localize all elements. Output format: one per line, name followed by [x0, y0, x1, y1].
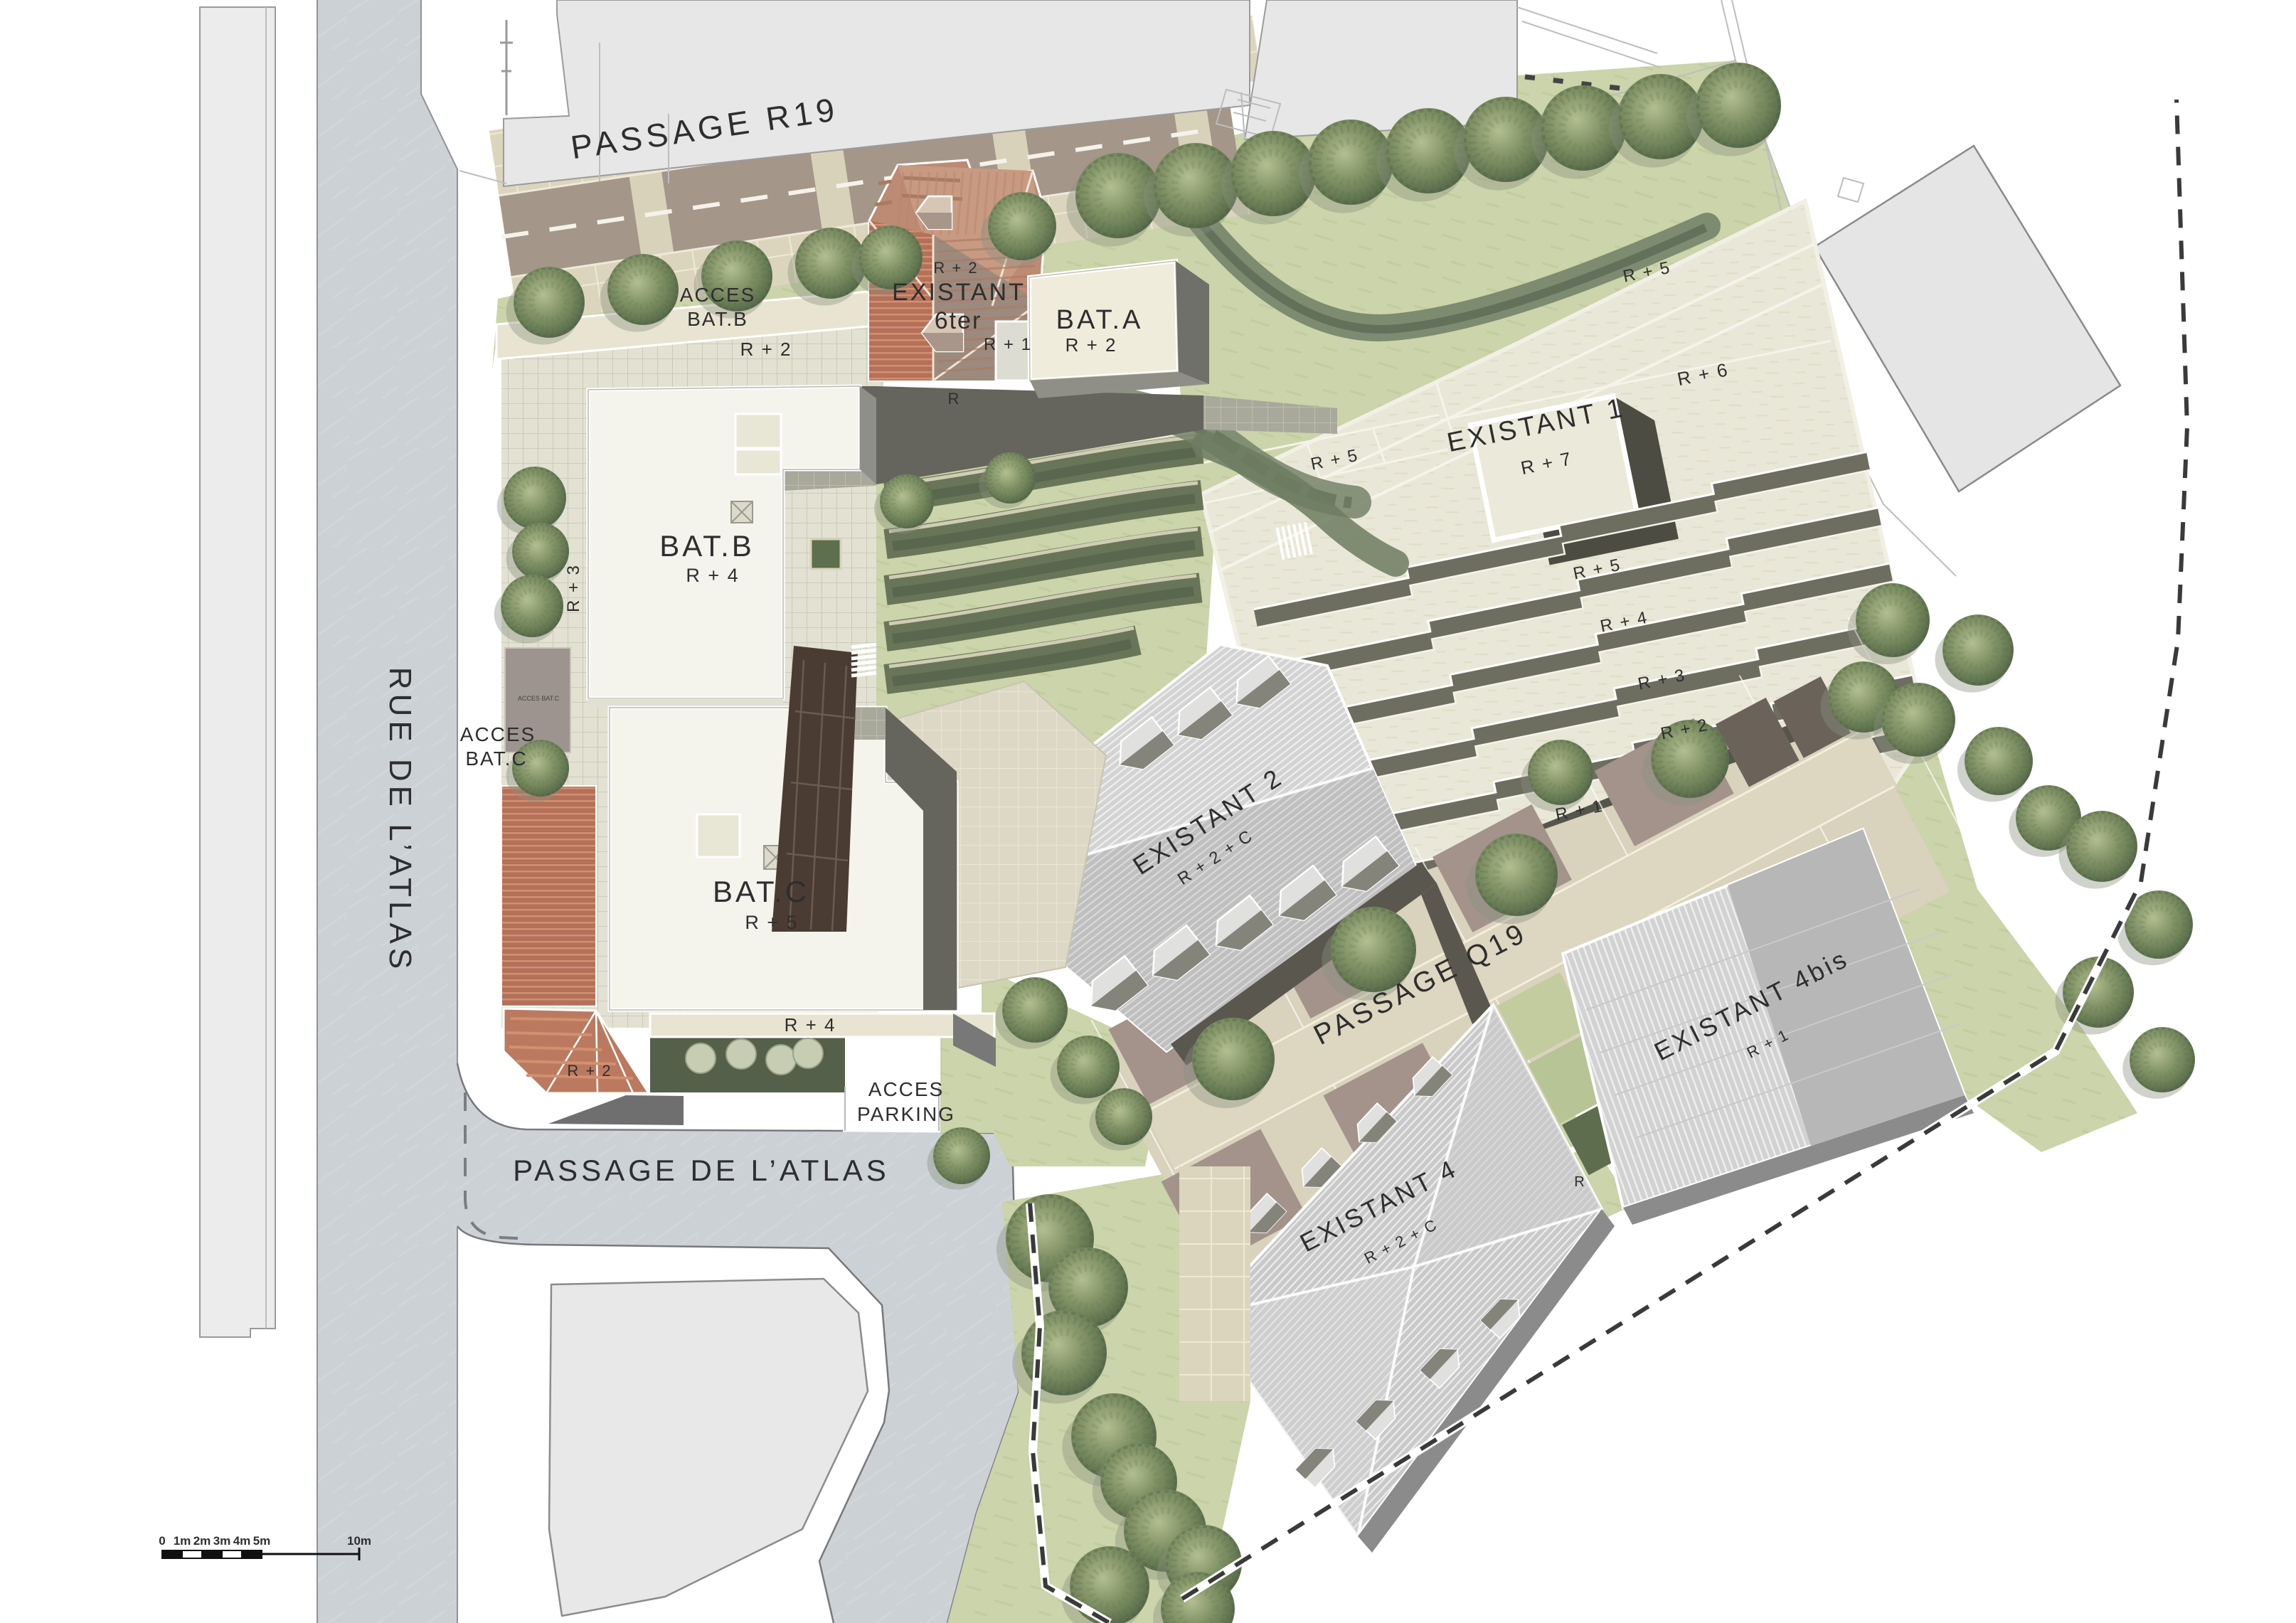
svg-text:R: R — [948, 390, 962, 408]
svg-text:6ter: 6ter — [935, 307, 982, 334]
svg-text:EXISTANT: EXISTANT — [892, 279, 1026, 306]
svg-text:R + 2: R + 2 — [933, 259, 978, 277]
svg-text:1m: 1m — [174, 1534, 191, 1548]
svg-text:R: R — [1574, 1174, 1586, 1190]
svg-text:R + 2: R + 2 — [740, 339, 792, 360]
svg-text:2m: 2m — [193, 1534, 211, 1548]
svg-text:10m: 10m — [347, 1534, 371, 1548]
svg-text:R + 1: R + 1 — [984, 335, 1032, 354]
svg-text:BAT.B: BAT.B — [687, 308, 748, 330]
svg-text:R + 2: R + 2 — [1065, 334, 1117, 356]
svg-text:ACCES BAT.C: ACCES BAT.C — [518, 695, 560, 702]
svg-text:R + 2: R + 2 — [567, 1062, 612, 1080]
svg-text:ACCES: ACCES — [680, 284, 755, 306]
svg-text:PARKING: PARKING — [857, 1103, 955, 1125]
svg-text:R + 4: R + 4 — [785, 1014, 836, 1036]
svg-text:ACCES: ACCES — [460, 723, 536, 745]
svg-text:BAT.B: BAT.B — [659, 529, 755, 563]
svg-text:R + 3: R + 3 — [564, 564, 583, 612]
svg-text:R + 5: R + 5 — [745, 912, 798, 933]
svg-text:R + 4: R + 4 — [686, 565, 739, 586]
svg-text:BAT.C: BAT.C — [713, 875, 809, 908]
svg-text:ACCES: ACCES — [868, 1078, 944, 1100]
svg-text:5m: 5m — [253, 1534, 271, 1548]
svg-text:BAT.A: BAT.A — [1056, 305, 1144, 335]
svg-text:RUE DE L’ATLAS: RUE DE L’ATLAS — [383, 667, 418, 973]
svg-text:BAT.C: BAT.C — [465, 747, 527, 770]
svg-text:PASSAGE DE L’ATLAS: PASSAGE DE L’ATLAS — [513, 1154, 890, 1187]
svg-text:3m: 3m — [213, 1534, 231, 1548]
svg-text:4m: 4m — [233, 1534, 251, 1548]
svg-text:0: 0 — [159, 1534, 165, 1548]
